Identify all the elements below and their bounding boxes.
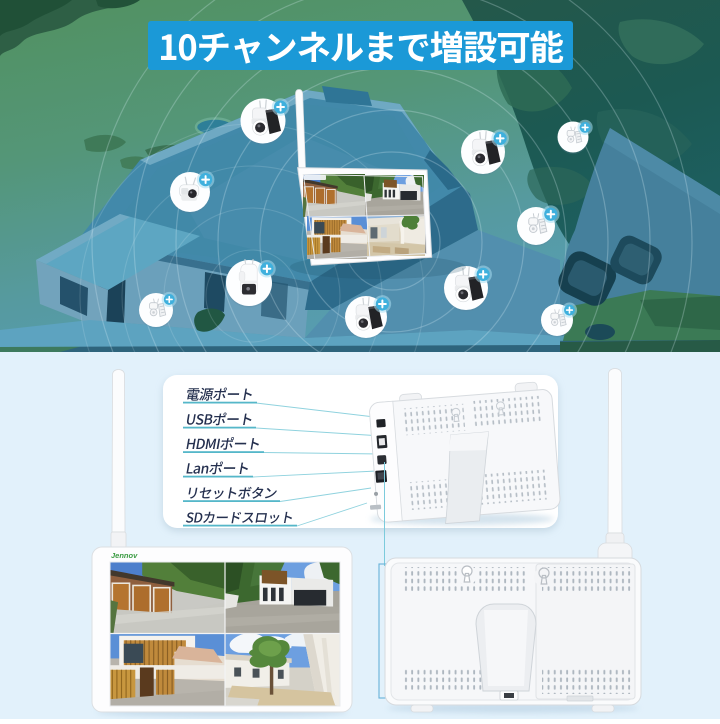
svg-text:Jennov: Jennov — [111, 551, 138, 560]
